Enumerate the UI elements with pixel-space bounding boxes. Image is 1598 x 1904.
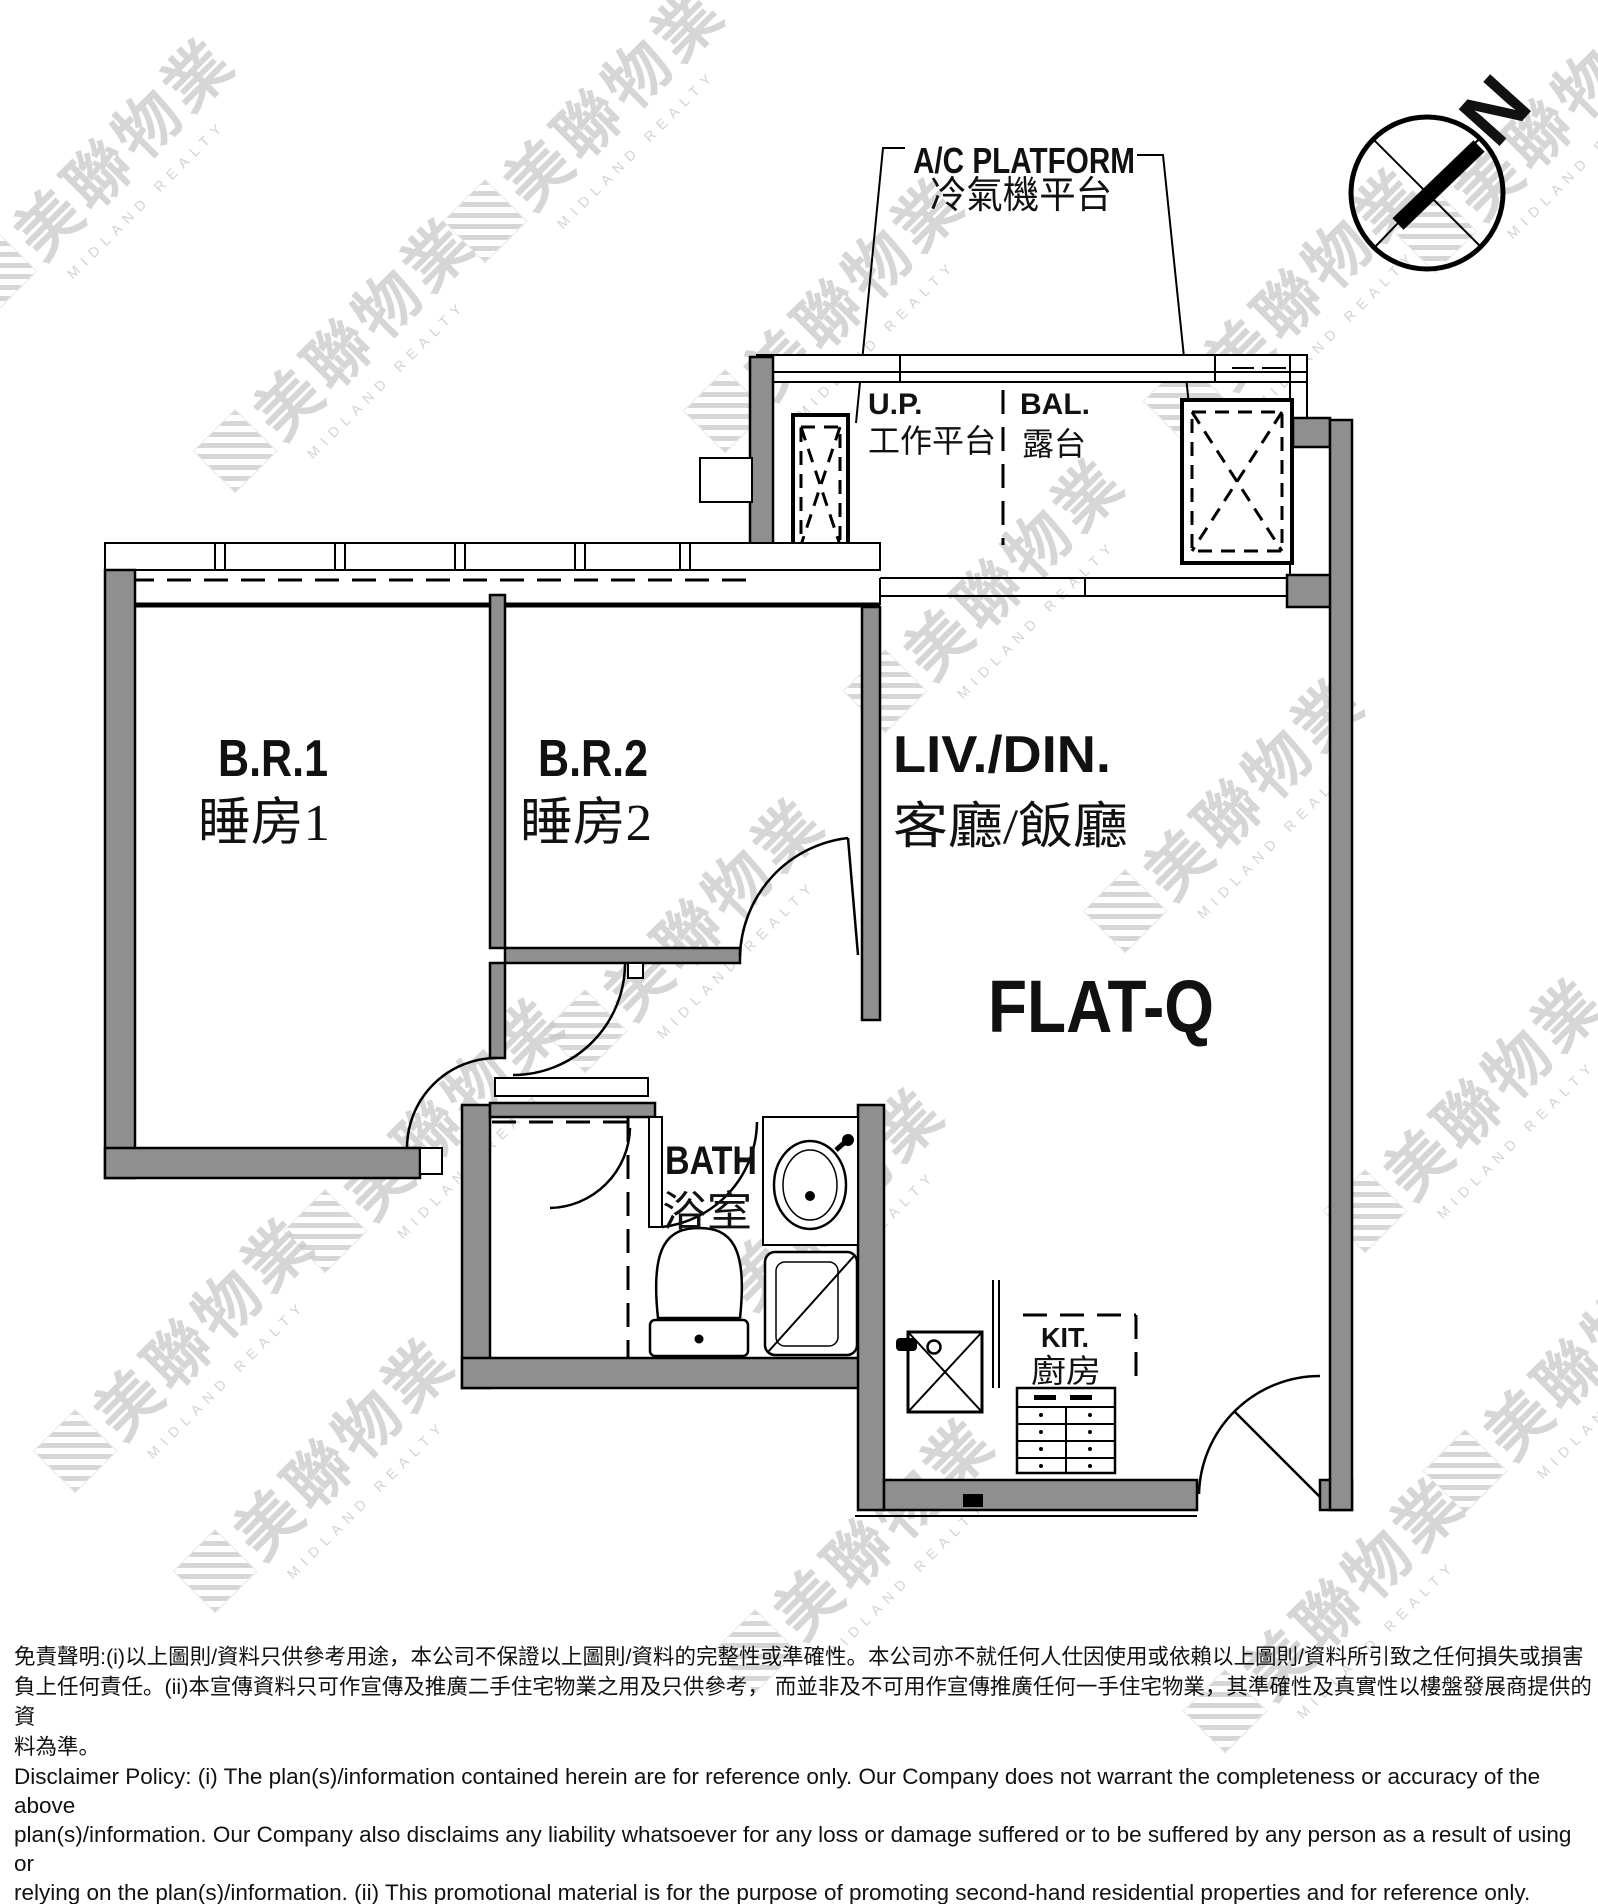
disclaimer-line: relying on the plan(s)/information. (ii)… — [14, 1878, 1592, 1904]
label-bath-en: BATH — [665, 1139, 757, 1183]
floorplan-drawing: N — [0, 0, 1598, 1600]
label-br2-zh: 睡房2 — [520, 795, 652, 852]
label-livdin-en: LIV./DIN. — [893, 726, 1111, 784]
kitchen-sink — [896, 1332, 982, 1412]
floorplan-page: 美聯物業 MIDLAND REALTY 美聯物業 MIDLAND REALTY … — [0, 0, 1598, 1904]
disclaimer-chinese: 免責聲明:(i)以上圖則/資料只供參考用途，本公司不保證以上圖則/資料的完整性或… — [14, 1642, 1592, 1762]
label-br1-en: B.R.1 — [218, 730, 328, 788]
kitchen-cabinet — [1017, 1388, 1115, 1473]
label-kit-zh: 廚房 — [1031, 1353, 1101, 1389]
label-bal-en: BAL. — [1020, 388, 1090, 421]
label-bath-zh: 浴室 — [662, 1189, 752, 1236]
bath-sink-counter — [763, 1117, 858, 1245]
label-up-en: U.P. — [868, 388, 922, 421]
label-br1-zh: 睡房1 — [198, 795, 330, 852]
ac-unit-right — [1182, 400, 1292, 563]
label-livdin-zh: 客廳/飯廳 — [893, 798, 1128, 854]
label-up-zh: 工作平台 — [868, 423, 996, 459]
disclaimer-line: 免責聲明:(i)以上圖則/資料只供參考用途，本公司不保證以上圖則/資料的完整性或… — [14, 1642, 1592, 1672]
label-kit-en: KIT. — [1041, 1322, 1089, 1353]
label-ac-platform-zh: 冷氣機平台 — [930, 175, 1112, 217]
north-indicator: N — [1351, 59, 1547, 269]
disclaimer-line: plan(s)/information. Our Company also di… — [14, 1820, 1592, 1878]
disclaimer-english: Disclaimer Policy: (i) The plan(s)/infor… — [14, 1762, 1592, 1904]
shower-tub — [765, 1252, 857, 1355]
disclaimer: 免責聲明:(i)以上圖則/資料只供參考用途，本公司不保證以上圖則/資料的完整性或… — [14, 1642, 1592, 1904]
disclaimer-line: Disclaimer Policy: (i) The plan(s)/infor… — [14, 1762, 1592, 1820]
label-br2-en: B.R.2 — [538, 730, 648, 788]
north-label: N — [1442, 59, 1547, 161]
ac-unit-left — [793, 415, 848, 557]
label-flat: FLAT-Q — [988, 965, 1214, 1048]
label-bal-zh: 露台 — [1022, 426, 1086, 462]
toilet — [650, 1228, 748, 1356]
disclaimer-line: 負上任何責任。(ii)本宣傳資料只可作宣傳及推廣二手住宅物業之用及只供參考， 而… — [14, 1672, 1592, 1732]
disclaimer-line: 料為準。 — [14, 1732, 1592, 1762]
